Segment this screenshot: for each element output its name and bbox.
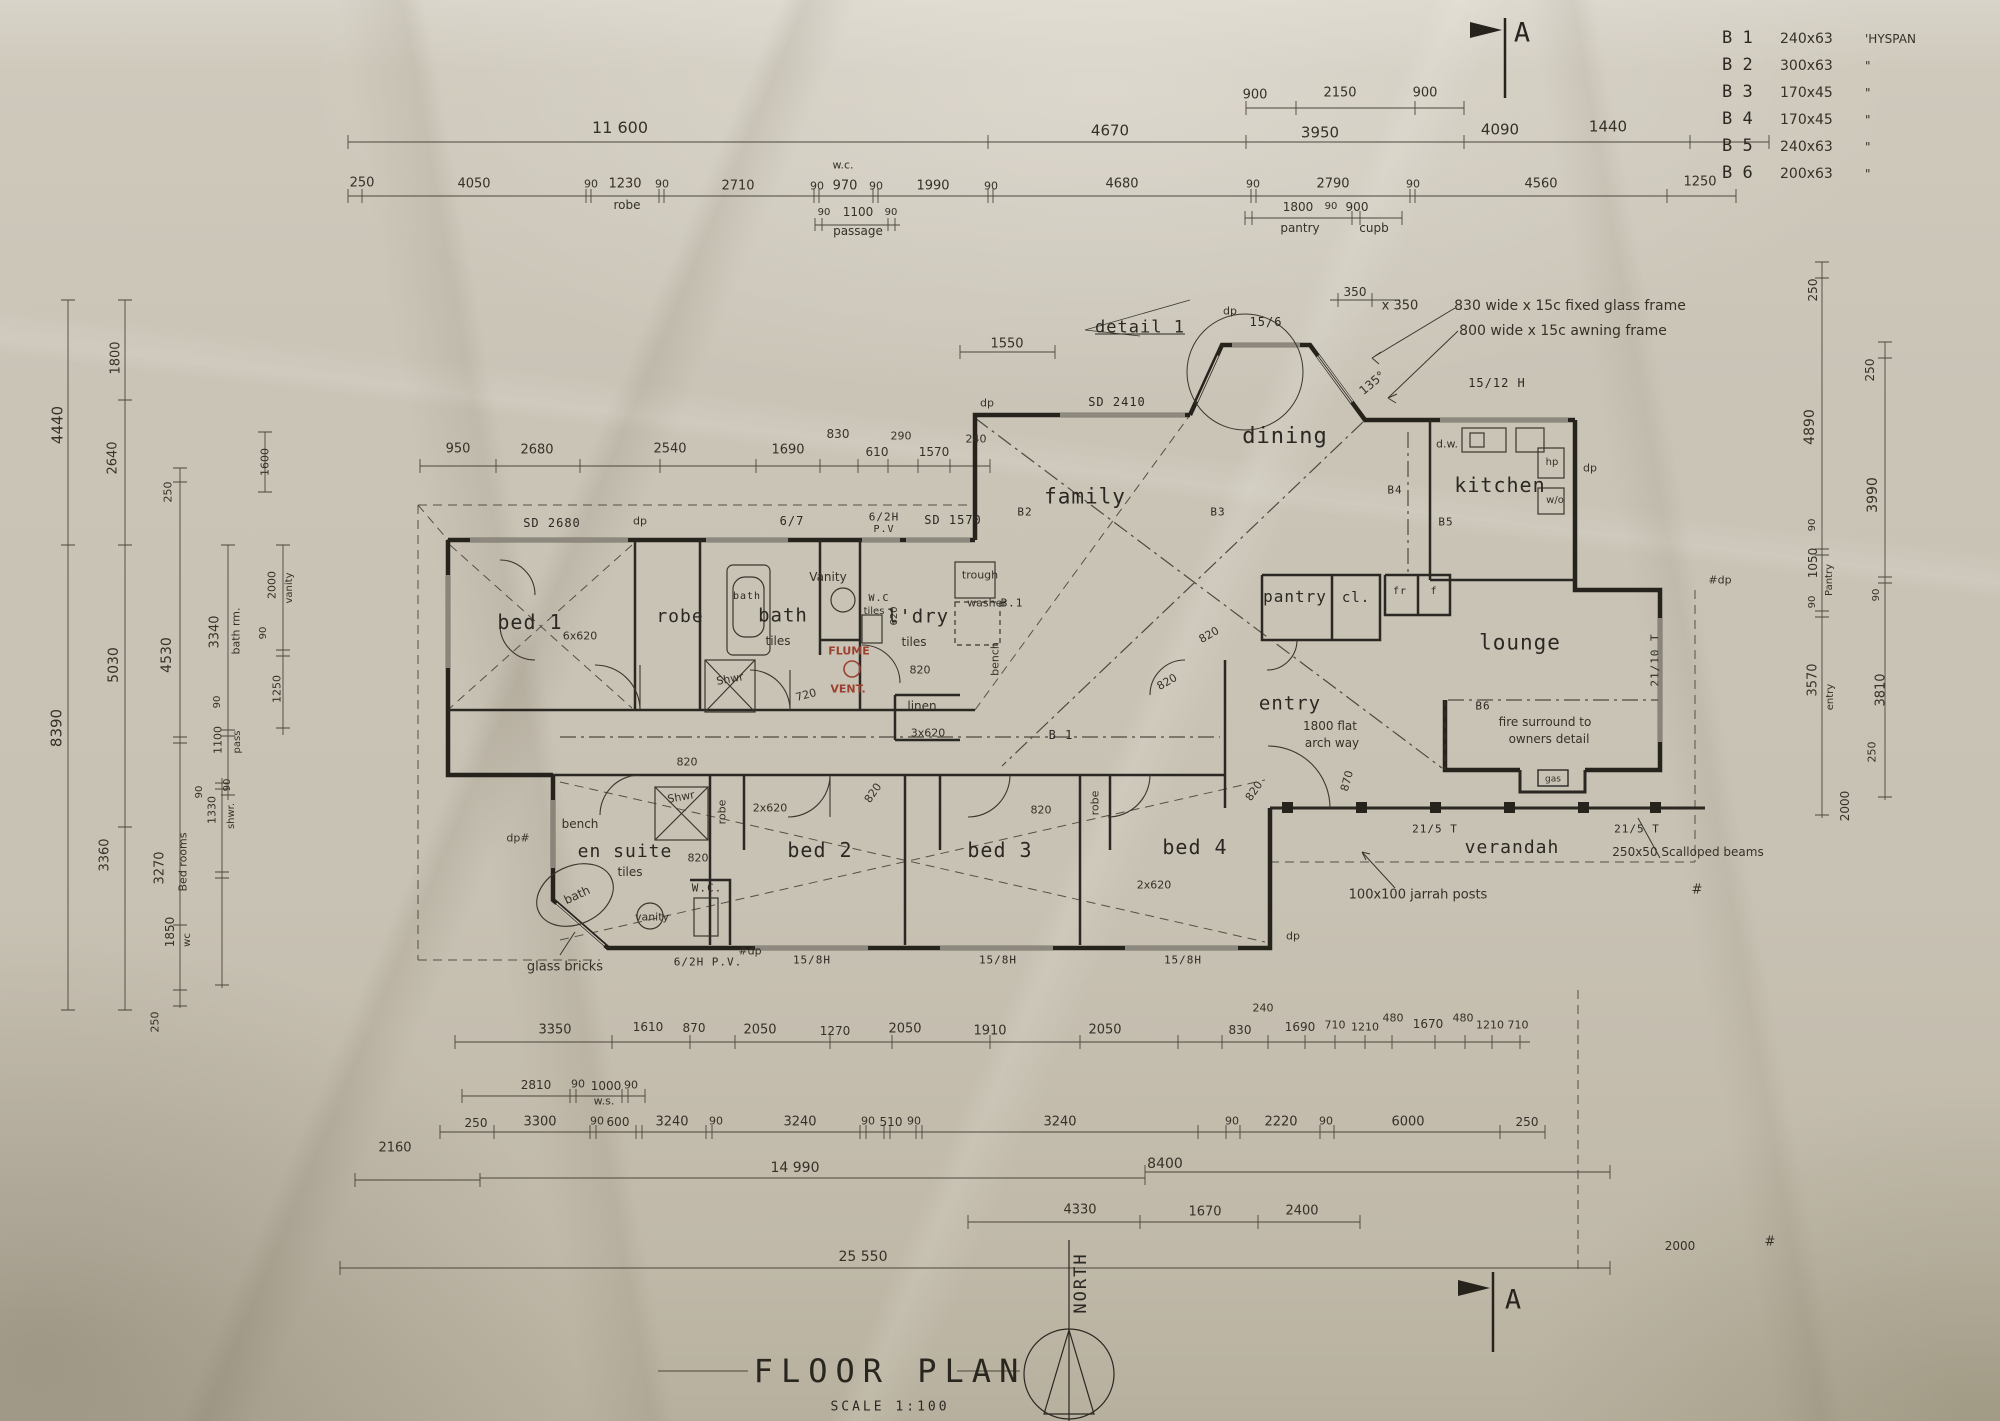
dim-label: 3240	[1043, 1116, 1076, 1129]
dim-label: B 1	[1049, 729, 1074, 741]
dim-label: 250	[163, 482, 174, 503]
beam-size: 240x63	[1780, 31, 1865, 47]
dim-label: robe	[1090, 791, 1101, 816]
dim-label: 250	[1864, 359, 1876, 382]
dim-label: 1570	[919, 446, 950, 458]
dim-label: dp	[1223, 306, 1237, 317]
dim-label: 90	[709, 1116, 723, 1127]
dim-label: #	[1692, 884, 1703, 897]
beam-id: B 3	[1722, 82, 1780, 102]
dim-label: 1440	[1589, 120, 1627, 135]
dim-label: 1800 flat	[1303, 720, 1357, 732]
dim-label: Bed rooms	[178, 833, 189, 892]
dim-label: 2810	[521, 1079, 552, 1091]
dim-label: dp	[633, 516, 647, 527]
dim-label: cupb	[1359, 222, 1388, 234]
glass-bricks-note: glass bricks	[527, 961, 603, 974]
dim-label: 90	[1872, 589, 1882, 602]
dim-label: fire surround to	[1499, 716, 1592, 728]
room-label-robe: robe	[656, 608, 703, 626]
dim-label: 1610	[633, 1021, 664, 1033]
dim-label: 1330	[207, 796, 218, 824]
dim-label: 250	[350, 177, 375, 190]
dim-label: Pantry	[1825, 564, 1835, 596]
floor-plan-drawing	[0, 0, 2000, 1421]
beam-id: B 6	[1722, 163, 1780, 183]
dim-label: 5030	[107, 647, 121, 683]
dim-label: 90	[810, 181, 824, 192]
dim-label: Vanity	[809, 571, 846, 583]
section-marker-lines	[1458, 18, 1505, 1352]
room-label-pantry: pantry	[1263, 589, 1327, 605]
dim-label: 4670	[1091, 124, 1129, 139]
dim-label: pass	[233, 731, 243, 754]
dim-label: 1990	[916, 180, 949, 193]
dim-label: 2050	[743, 1024, 776, 1037]
dim-label: 1250	[1683, 176, 1716, 189]
dim-label: tiles	[765, 635, 790, 647]
dim-label: 4890	[1803, 409, 1817, 445]
dim-label: 4090	[1481, 123, 1519, 138]
dim-label: 2640	[107, 441, 120, 474]
beam-id: B 2	[1722, 55, 1780, 75]
dim-label: 4680	[1105, 178, 1138, 191]
dim-label: 510	[880, 1116, 903, 1128]
dim-label: VENT.	[830, 684, 865, 695]
scalloped-beams-note: 250x50 Scalloped beams	[1612, 846, 1763, 858]
dim-label: 820	[1031, 805, 1052, 816]
dim-label: #dp	[738, 946, 761, 957]
dim-label: 480	[1453, 1013, 1474, 1024]
dim-label: 4330	[1063, 1204, 1096, 1217]
fixed-glass-note: 830 wide x 15c fixed glass frame	[1454, 299, 1686, 313]
dim-label: B5	[1438, 517, 1453, 528]
dim-label: 3990	[1866, 477, 1880, 513]
awning-frame-note: 800 wide x 15c awning frame	[1459, 324, 1667, 338]
dim-label: 90	[1246, 179, 1260, 190]
beam-size: 240x63	[1780, 139, 1865, 155]
dim-label: 15/8H	[793, 955, 831, 966]
dim-label: 1800	[110, 341, 123, 374]
dim-label: 6/2H	[869, 512, 900, 523]
dim-label: 90	[861, 1116, 875, 1127]
dim-label: 90	[213, 696, 223, 709]
dim-label: 250	[1807, 279, 1819, 302]
dim-label: 1690	[1285, 1021, 1316, 1033]
room-label-bed-3: bed 3	[967, 840, 1032, 860]
dim-label: 1250	[272, 675, 283, 703]
dim-label: 480	[1383, 1013, 1404, 1024]
beam-schedule-row: B 5240x63"	[1722, 136, 1916, 163]
dim-label: tiles	[864, 607, 885, 617]
dim-label: 8390	[50, 709, 65, 747]
dim-label: 90	[624, 1080, 638, 1091]
dim-label: 2160	[378, 1142, 411, 1155]
dim-label: 3810	[1875, 673, 1888, 706]
room-label-verandah: verandah	[1465, 839, 1560, 857]
dim-label: wc	[183, 933, 193, 947]
dim-label: 1270	[820, 1025, 851, 1037]
dim-label: 610	[866, 446, 889, 458]
dim-label: 90	[223, 779, 233, 792]
beam-note: "	[1865, 86, 1871, 100]
dim-label: 710	[1325, 1020, 1346, 1031]
dim-label: 1690	[771, 444, 804, 457]
room-label-entry: entry	[1259, 695, 1321, 714]
dim-label: 1210	[1351, 1022, 1379, 1033]
beam-note: "	[1865, 140, 1871, 154]
room-label-bed-1: bed 1	[497, 612, 562, 632]
dim-label: 90	[195, 786, 205, 799]
dim-label: 2680	[520, 444, 553, 457]
dim-label: 1670	[1413, 1018, 1444, 1030]
dim-label: 1230	[608, 178, 641, 191]
dim-label: 6/7	[780, 515, 805, 527]
dim-label: 240	[966, 434, 987, 445]
section-marker-a-bottom: A	[1505, 1285, 1521, 1316]
dim-label: entry	[1826, 684, 1836, 710]
dim-label: 2400	[1285, 1205, 1318, 1218]
dim-label: 870	[683, 1022, 706, 1034]
dim-label: w.c.	[832, 160, 853, 171]
room-label-kitchen: kitchen	[1454, 475, 1545, 495]
beam-size: 170x45	[1780, 112, 1865, 128]
dim-label: 2540	[653, 443, 686, 456]
dim-label: SD 2410	[1088, 396, 1146, 408]
dim-label: linen	[907, 700, 936, 712]
dim-label: 900	[1413, 87, 1438, 100]
dim-label: 2000	[267, 571, 278, 599]
dim-label: dp	[1583, 463, 1597, 474]
dim-label: 15/12 H	[1468, 377, 1526, 389]
dim-label: 21/5 T	[1412, 824, 1458, 835]
dim-label: B3	[1210, 507, 1225, 518]
dim-label: shwr.	[227, 803, 237, 829]
dim-label: 4050	[457, 178, 490, 191]
dim-label: x 350	[1382, 300, 1419, 313]
dim-label: 4560	[1524, 178, 1557, 191]
dim-label: gas	[1545, 776, 1561, 785]
dim-label: robe	[717, 800, 728, 825]
dim-label: pantry	[1280, 222, 1319, 234]
dim-label: 90	[1325, 202, 1338, 212]
dim-label: 90	[869, 181, 883, 192]
dim-label: B2	[1017, 507, 1032, 518]
beam-schedule-row: B 1240x63'HYSPAN	[1722, 28, 1916, 55]
drawing-title: FLOOR PLAN	[754, 1352, 1027, 1390]
dim-label: P.V	[873, 525, 894, 535]
room-label-ldry: l'dry	[887, 608, 949, 627]
dim-label: 1850	[164, 917, 176, 948]
dim-label: robe	[613, 199, 640, 211]
dim-label: 900	[1243, 89, 1268, 102]
dim-label: bench	[990, 642, 1001, 676]
dim-label: 90	[818, 208, 831, 218]
dim-label: 11 600	[592, 120, 648, 136]
dim-label: 90	[885, 208, 898, 218]
dim-label: 1550	[990, 338, 1023, 351]
beam-size: 300x63	[1780, 58, 1865, 74]
dim-label: trough	[962, 570, 998, 581]
room-label-bath: bath	[758, 607, 808, 626]
beam-schedule: B 1240x63'HYSPANB 2300x63"B 3170x45"B 41…	[1722, 28, 1916, 190]
dim-label: dp#	[506, 833, 529, 844]
drawing-scale: SCALE 1:100	[830, 1400, 949, 1415]
dim-label: 15/8H	[979, 955, 1017, 966]
dim-label: 3570	[1807, 663, 1820, 696]
dim-label: bench	[562, 818, 599, 830]
dim-label: 21/5 T	[1614, 824, 1660, 835]
dim-label: #	[1765, 1236, 1776, 1249]
dim-label: bath rm.	[231, 607, 242, 654]
dim-label: 710	[1508, 1020, 1529, 1031]
beam-note: "	[1865, 113, 1871, 127]
room-label-lounge: lounge	[1479, 633, 1561, 654]
beam-size: 200x63	[1780, 166, 1865, 182]
dim-label: w/o	[1546, 496, 1564, 506]
section-marker-a-top: A	[1514, 18, 1530, 49]
dim-label: 4440	[51, 406, 66, 444]
dim-label: 6/2H P.V.	[674, 957, 743, 968]
dim-label: 90	[907, 1116, 921, 1127]
room-label-dining: dining	[1242, 426, 1327, 448]
beam-schedule-row: B 3170x45"	[1722, 82, 1916, 109]
dim-label: 2150	[1323, 87, 1356, 100]
dim-label: arch way	[1305, 737, 1359, 749]
dim-label: 240	[1253, 1003, 1274, 1014]
dim-label: 1100	[213, 726, 224, 754]
dim-label: 2000	[1665, 1240, 1696, 1252]
dim-label: 1670	[1188, 1206, 1221, 1219]
dim-label: 3950	[1301, 126, 1339, 141]
dim-label: 90	[655, 179, 669, 190]
north-arrow	[1024, 1240, 1114, 1421]
dim-label: 290	[891, 431, 912, 442]
room-label-bed-2: bed 2	[787, 840, 852, 860]
dim-label: 25 550	[839, 1250, 888, 1264]
dim-label: dp	[1286, 931, 1300, 942]
dim-label: 3340	[209, 615, 222, 648]
dim-label: f	[1430, 587, 1437, 597]
dim-label: 90	[1319, 1116, 1333, 1127]
dim-label: 2790	[1316, 178, 1349, 191]
dim-label: 90	[259, 627, 269, 640]
beam-schedule-row: B 6200x63"	[1722, 163, 1916, 190]
dim-label: 90	[1225, 1116, 1239, 1127]
dim-label: 90	[984, 181, 998, 192]
dim-label: owners detail	[1509, 733, 1590, 745]
dim-label: 820	[688, 853, 709, 864]
dim-label: 3240	[783, 1116, 816, 1129]
dim-label: 3300	[523, 1116, 556, 1129]
dim-label: 250	[465, 1117, 488, 1129]
dim-label: 250	[1867, 742, 1878, 763]
dim-label: B4	[1387, 485, 1402, 496]
dim-label: 1910	[973, 1025, 1006, 1038]
beam-size: 170x45	[1780, 85, 1865, 101]
dim-label: SD 1570	[924, 514, 982, 526]
dim-label: B.1	[1001, 598, 1024, 609]
dim-label: 90	[590, 1116, 604, 1127]
dim-label: 1600	[260, 448, 271, 476]
dim-label: 250	[1516, 1116, 1539, 1128]
dim-label: 21/10 T	[1650, 633, 1661, 686]
flume-vent-stamp: FLUME	[828, 646, 870, 657]
dim-label: passage	[833, 225, 883, 237]
dim-label: 970	[833, 180, 858, 193]
verandah-beam	[1270, 770, 1705, 808]
dim-label: 250	[150, 1012, 161, 1033]
dim-label: 15/6	[1250, 316, 1283, 328]
dim-label: 820	[677, 757, 698, 768]
dim-label: 90	[1808, 519, 1818, 532]
dim-label: 1800	[1283, 201, 1314, 213]
dim-label: 2050	[1088, 1024, 1121, 1037]
dim-label: 350	[1344, 286, 1367, 298]
floor-plan-sheet: 11 6004670900215090039504090144025040509…	[0, 0, 2000, 1421]
dim-label: 90	[1406, 179, 1420, 190]
beam-id: B 5	[1722, 136, 1780, 156]
dim-label: fr	[1393, 587, 1407, 597]
dim-label: 14 990	[771, 1161, 820, 1175]
room-label-en-suite: en suite	[578, 843, 673, 861]
dim-label: hp	[1546, 458, 1559, 468]
dim-label: w.s.	[594, 1096, 615, 1107]
dim-label: 15/8H	[1164, 955, 1202, 966]
dim-label: 830	[827, 428, 850, 440]
north-label: NORTH	[1071, 1252, 1091, 1313]
dim-label: 2220	[1264, 1116, 1297, 1129]
dim-label: SD 2680	[523, 517, 581, 529]
dim-label: 950	[446, 443, 471, 456]
dim-label: vanity	[635, 912, 669, 923]
dim-label: vanity	[285, 572, 295, 603]
dim-label: 2x620	[1137, 880, 1172, 891]
dim-label: 3350	[538, 1024, 571, 1037]
dim-label: 2710	[721, 180, 754, 193]
dim-label: 600	[607, 1116, 630, 1128]
beam-schedule-row: B 2300x63"	[1722, 55, 1916, 82]
dim-label: 3270	[154, 851, 167, 884]
dim-label: 6000	[1391, 1116, 1424, 1129]
dim-label: bath	[733, 592, 761, 602]
dim-label: tiles	[901, 636, 926, 648]
beam-note: "	[1865, 59, 1871, 73]
dim-label: 3x620	[911, 728, 946, 739]
dim-label: 1210	[1476, 1020, 1504, 1031]
dim-label: 830	[1229, 1024, 1252, 1036]
dim-label: #dp	[1708, 575, 1731, 586]
beam-note: "	[1865, 167, 1871, 181]
dim-label: d.w.	[1436, 439, 1458, 450]
dim-label: 3360	[99, 838, 112, 871]
dim-label: B6	[1475, 701, 1490, 712]
beam-id: B 4	[1722, 109, 1780, 129]
beam-id: B 1	[1722, 28, 1780, 48]
room-label-bed-4: bed 4	[1162, 837, 1227, 857]
dim-label: 3240	[655, 1116, 688, 1129]
dim-label: 4530	[160, 637, 174, 673]
dim-label: 2050	[888, 1023, 921, 1036]
dim-label: 900	[1346, 201, 1369, 213]
dim-label: 90	[571, 1079, 585, 1090]
beam-note: 'HYSPAN	[1865, 32, 1916, 46]
beam-schedule-row: B 4170x45"	[1722, 109, 1916, 136]
dim-label: 8400	[1147, 1157, 1183, 1171]
dim-label: W.C.	[692, 883, 723, 894]
dim-label: 2000	[1839, 791, 1851, 822]
room-label-closet: cl.	[1342, 591, 1370, 605]
dim-label: 90	[1808, 596, 1818, 609]
room-label-family: family	[1044, 487, 1126, 508]
dim-label: 1100	[843, 206, 874, 218]
dim-label: 90	[584, 179, 598, 190]
dim-label: 6x620	[563, 631, 598, 642]
dim-label: dp	[980, 398, 994, 409]
dim-label: 2x620	[753, 803, 788, 814]
dim-label: 1050	[1807, 548, 1819, 579]
dim-label: 1000	[591, 1080, 622, 1092]
dim-label: 820	[910, 665, 931, 676]
dimension-lines	[61, 101, 1892, 1371]
dim-label: W.C	[868, 594, 889, 604]
detail-1-callout: detail 1	[1095, 320, 1185, 337]
jarrah-posts-note: 100x100 jarrah posts	[1349, 889, 1488, 902]
dim-label: tiles	[617, 866, 642, 878]
beam-lines	[560, 418, 1658, 768]
